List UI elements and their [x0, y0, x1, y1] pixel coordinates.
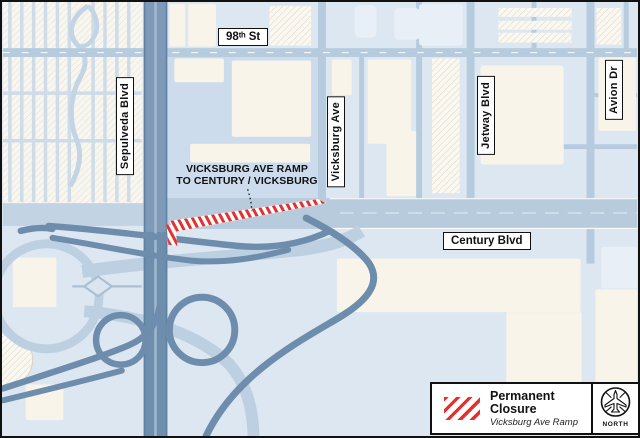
- legend: Permanent Closure Vicksburg Ave Ramp NOR…: [430, 382, 640, 435]
- street-label-avion-dr: Avion Dr: [605, 60, 623, 120]
- closure-annotation-line1: VICKSBURG AVE RAMP: [152, 163, 342, 175]
- street-label-sepulveda-blvd: Sepulveda Blvd: [116, 77, 134, 175]
- legend-subtitle: Vicksburg Ave Ramp: [490, 417, 578, 428]
- legend-title-line2: Closure: [490, 403, 578, 416]
- map-graphic: [2, 2, 638, 436]
- street-label-98th-st: 98ᵗʰ St: [218, 28, 268, 46]
- red-diagonal-hatch-icon: [444, 397, 480, 420]
- legend-main: Permanent Closure Vicksburg Ave Ramp: [432, 384, 591, 433]
- legend-title-line1: Permanent: [490, 390, 578, 403]
- airplane-compass-icon: [599, 386, 632, 421]
- legend-text: Permanent Closure Vicksburg Ave Ramp: [490, 390, 578, 428]
- north-label: NORTH: [602, 421, 628, 429]
- street-label-jetway-blvd: Jetway Blvd: [477, 76, 495, 155]
- sepulveda-freeway: [144, 2, 168, 436]
- closure-map-canvas: 98ᵗʰ St Sepulveda Blvd Vicksburg Ave Jet…: [0, 0, 640, 438]
- closure-annotation: VICKSBURG AVE RAMP TO CENTURY / VICKSBUR…: [152, 163, 342, 187]
- street-label-century-blvd: Century Blvd: [443, 232, 531, 250]
- closure-annotation-line2: TO CENTURY / VICKSBURG: [152, 175, 342, 187]
- north-compass: NORTH: [591, 384, 638, 433]
